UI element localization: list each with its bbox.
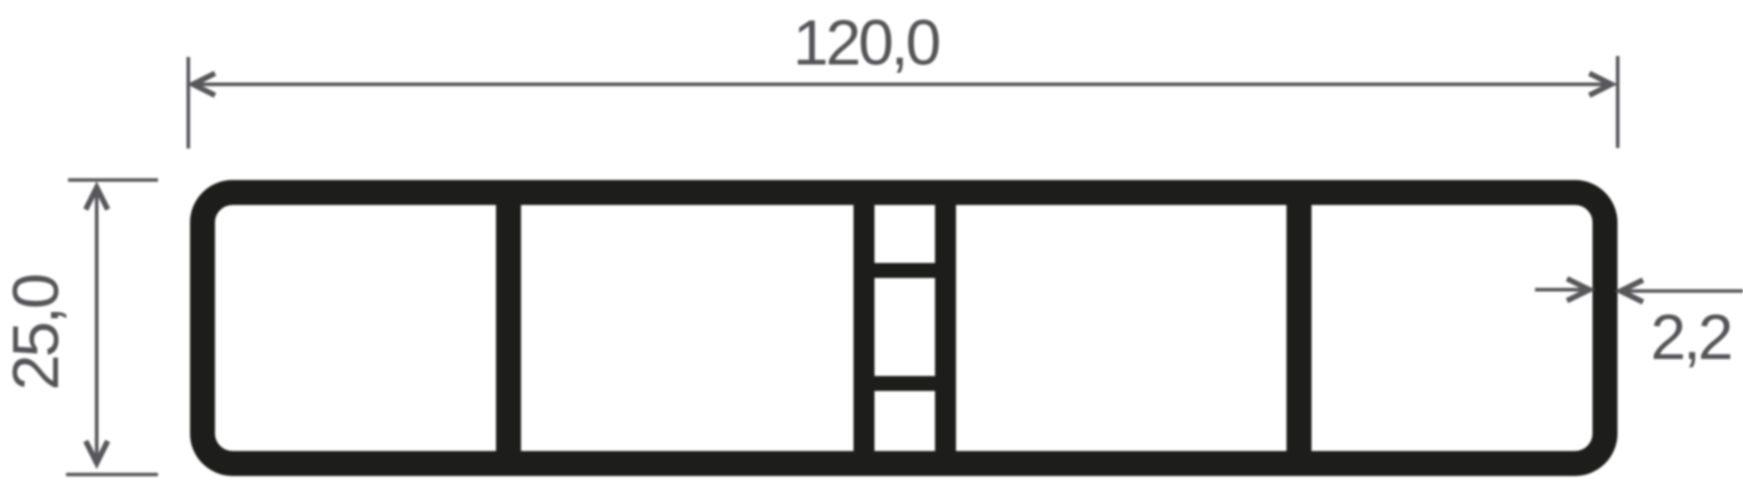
svg-text:25,0: 25,0 — [0, 275, 72, 390]
svg-text:120,0: 120,0 — [793, 7, 940, 79]
svg-text:2,2: 2,2 — [1651, 301, 1731, 373]
